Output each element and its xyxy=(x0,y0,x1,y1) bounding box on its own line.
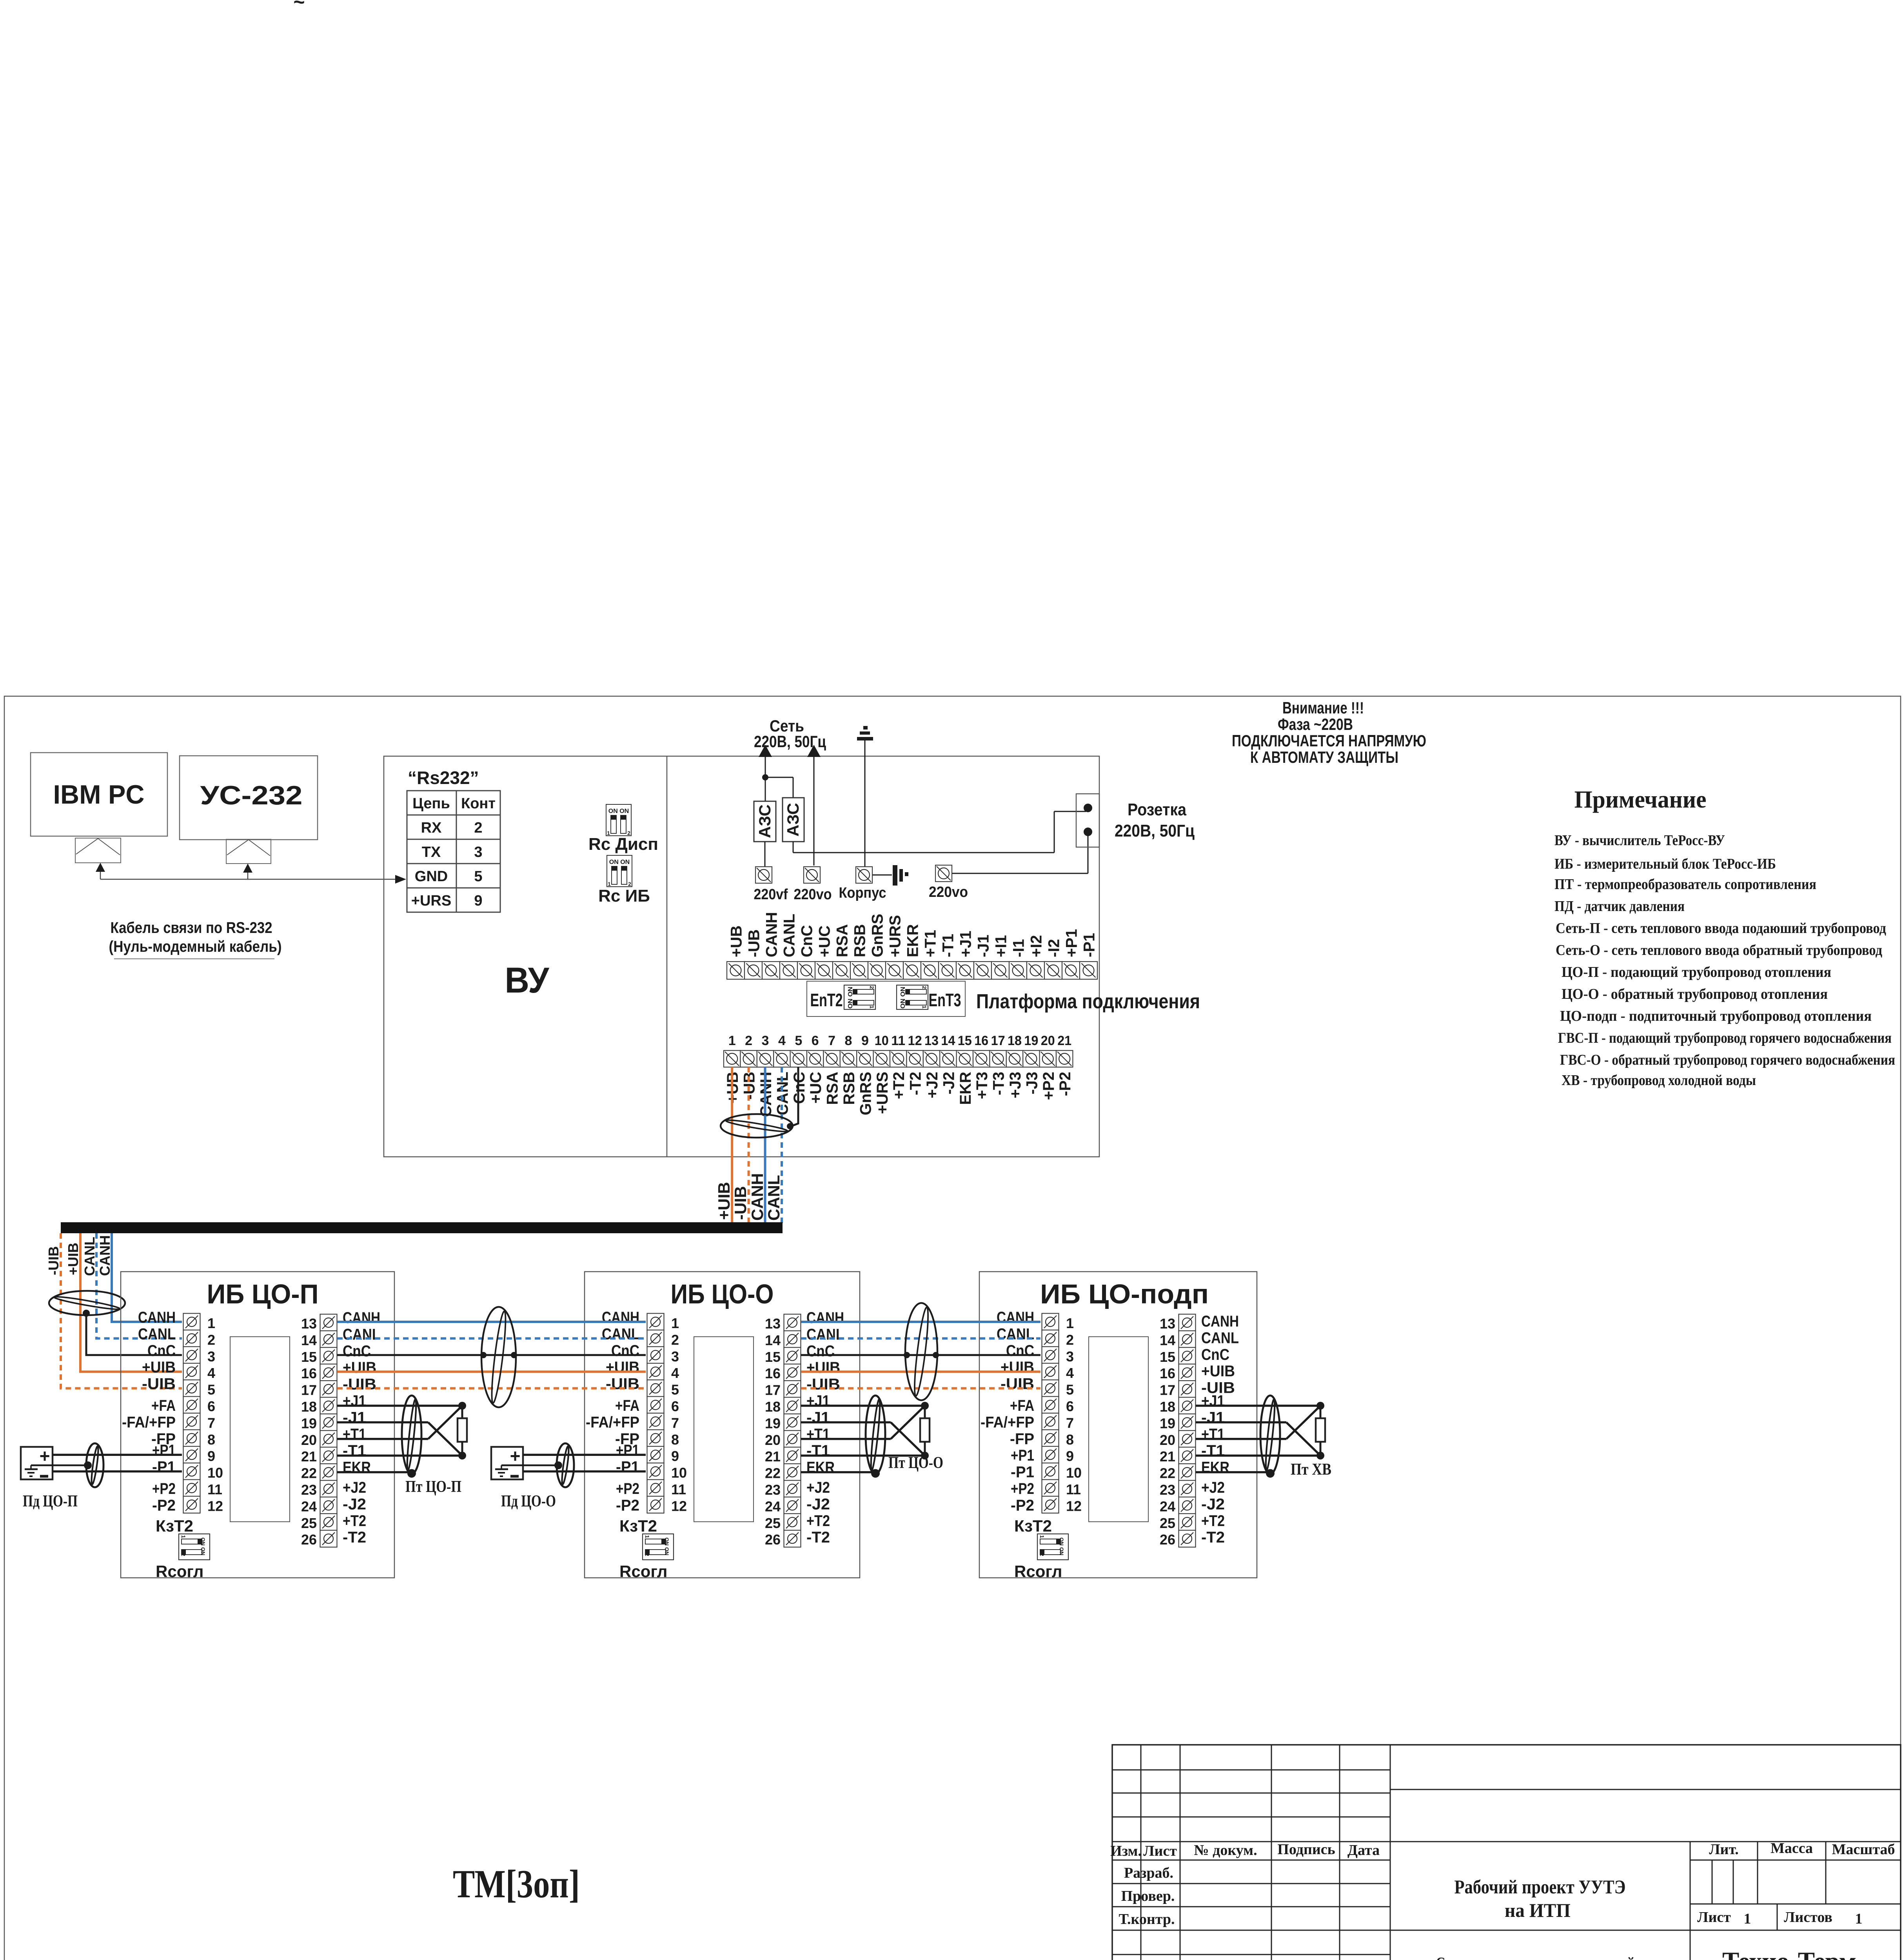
svg-text:~: ~ xyxy=(293,0,305,13)
svg-text:8: 8 xyxy=(671,1432,679,1448)
svg-text:Rc Дисп: Rc Дисп xyxy=(588,835,658,854)
svg-text:2: 2 xyxy=(1066,1332,1074,1348)
svg-text:16: 16 xyxy=(301,1365,317,1381)
svg-text:16: 16 xyxy=(974,1033,988,1048)
svg-text:18: 18 xyxy=(1008,1033,1022,1048)
svg-text:8: 8 xyxy=(845,1033,852,1048)
svg-text:3: 3 xyxy=(1066,1348,1074,1365)
svg-text:-UIB: -UIB xyxy=(606,1376,639,1393)
svg-text:-UIB: -UIB xyxy=(806,1376,840,1393)
svg-text:УС-232: УС-232 xyxy=(200,780,303,810)
svg-text:-J1: -J1 xyxy=(975,935,992,957)
svg-text:11: 11 xyxy=(207,1481,222,1497)
svg-text:CANH: CANH xyxy=(997,1309,1034,1326)
svg-text:12: 12 xyxy=(1066,1498,1082,1514)
svg-text:ON ON: ON ON xyxy=(664,1537,670,1555)
svg-text:Рабочий проект УУТЭ: Рабочий проект УУТЭ xyxy=(1454,1876,1626,1898)
svg-text:-UIB: -UIB xyxy=(731,1186,750,1220)
svg-text:15: 15 xyxy=(301,1349,317,1365)
svg-text:Пд ЦО-П: Пд ЦО-П xyxy=(23,1492,78,1510)
svg-text:9: 9 xyxy=(1066,1448,1074,1464)
svg-text:CnC: CnC xyxy=(343,1343,371,1360)
svg-text:Пт ХВ: Пт ХВ xyxy=(1291,1461,1331,1479)
svg-text:RSA: RSA xyxy=(834,924,851,957)
svg-text:5: 5 xyxy=(1066,1382,1074,1398)
svg-text:+UC: +UC xyxy=(807,1072,824,1103)
svg-text:-T1: -T1 xyxy=(940,934,957,957)
svg-text:“Rs232”: “Rs232” xyxy=(408,768,479,788)
svg-text:+J1: +J1 xyxy=(806,1392,830,1410)
svg-text:+UIB: +UIB xyxy=(343,1359,376,1376)
svg-text:+T3: +T3 xyxy=(973,1072,991,1099)
svg-text:№ докум.: № докум. xyxy=(1194,1842,1257,1858)
svg-text:+J1: +J1 xyxy=(1201,1392,1225,1410)
svg-text:-T1: -T1 xyxy=(1201,1442,1225,1459)
svg-text:Розетка: Розетка xyxy=(1128,800,1186,819)
svg-text:Техно-Терм: Техно-Терм xyxy=(1722,1946,1856,1960)
svg-text:8: 8 xyxy=(207,1432,215,1448)
svg-text:-P1: -P1 xyxy=(1081,933,1098,957)
svg-text:+P2: +P2 xyxy=(152,1480,176,1497)
svg-text:21: 21 xyxy=(1057,1033,1071,1048)
svg-text:21: 21 xyxy=(765,1448,781,1465)
svg-text:CANL: CANL xyxy=(138,1325,176,1343)
svg-text:АЗС: АЗС xyxy=(755,804,774,838)
svg-text:+P1: +P1 xyxy=(152,1442,176,1459)
svg-text:220vo: 220vo xyxy=(929,884,968,900)
svg-text:7: 7 xyxy=(207,1415,215,1431)
svg-text:6: 6 xyxy=(671,1398,679,1414)
svg-text:9: 9 xyxy=(671,1448,679,1464)
svg-text:1: 1 xyxy=(207,1315,215,1331)
svg-text:25: 25 xyxy=(765,1515,781,1531)
svg-text:4: 4 xyxy=(207,1365,215,1381)
svg-text:CANL: CANL xyxy=(806,1326,844,1343)
svg-text:11: 11 xyxy=(671,1481,686,1497)
svg-text:-T2: -T2 xyxy=(806,1529,830,1546)
svg-text:1: 1 xyxy=(644,1535,650,1538)
svg-text:Изм.: Изм. xyxy=(1110,1843,1142,1859)
svg-text:ON ON: ON ON xyxy=(608,808,629,815)
svg-text:16: 16 xyxy=(765,1365,781,1381)
svg-text:Сеть-П - сеть теплового ввода: Сеть-П - сеть теплового ввода подаюший т… xyxy=(1556,920,1886,936)
svg-text:-T1: -T1 xyxy=(343,1442,366,1459)
svg-text:Rсогл: Rсогл xyxy=(156,1562,203,1581)
svg-text:13: 13 xyxy=(1160,1316,1175,1332)
svg-text:2: 2 xyxy=(869,986,875,989)
svg-text:-P1: -P1 xyxy=(1011,1464,1034,1481)
svg-text:+P2: +P2 xyxy=(616,1480,639,1497)
svg-text:+FA: +FA xyxy=(151,1397,176,1414)
svg-text:-I1: -I1 xyxy=(1010,939,1028,957)
svg-text:4: 4 xyxy=(1066,1365,1074,1381)
svg-text:CANL: CANL xyxy=(82,1237,98,1276)
svg-text:Подпись: Подпись xyxy=(1277,1841,1335,1858)
svg-text:TX: TX xyxy=(422,844,441,860)
svg-text:+P1: +P1 xyxy=(1063,929,1080,957)
svg-text:CANL: CANL xyxy=(602,1325,639,1343)
svg-text:+FA: +FA xyxy=(1010,1397,1034,1414)
svg-text:17: 17 xyxy=(1160,1382,1175,1398)
svg-text:Сеть-О - сеть теплового ввода: Сеть-О - сеть теплового ввода обратный т… xyxy=(1556,942,1882,958)
svg-text:GnRS: GnRS xyxy=(857,1072,874,1115)
svg-text:4: 4 xyxy=(778,1033,786,1048)
svg-text:20: 20 xyxy=(1041,1033,1055,1048)
svg-text:Провер.: Провер. xyxy=(1121,1888,1175,1904)
svg-text:12: 12 xyxy=(908,1033,922,1048)
svg-text:9: 9 xyxy=(474,893,482,909)
svg-text:АЗС: АЗС xyxy=(784,803,802,837)
svg-text:-UIB: -UIB xyxy=(142,1376,176,1393)
svg-text:CANL: CANL xyxy=(343,1326,380,1343)
svg-text:ПД - датчик давления: ПД - датчик давления xyxy=(1554,898,1685,915)
svg-text:10: 10 xyxy=(875,1033,889,1048)
svg-text:17: 17 xyxy=(301,1382,317,1398)
svg-text:Пд ЦО-О: Пд ЦО-О xyxy=(501,1492,556,1510)
svg-text:26: 26 xyxy=(1160,1532,1175,1548)
svg-text:CnC: CnC xyxy=(799,925,816,957)
svg-text:+: + xyxy=(40,1446,50,1466)
svg-text:26: 26 xyxy=(301,1532,317,1548)
svg-text:Масса: Масса xyxy=(1770,1840,1813,1857)
svg-text:-J1: -J1 xyxy=(806,1409,830,1426)
svg-text:ЦО-подп - подпиточный трубопро: ЦО-подп - подпиточный трубопровод отопле… xyxy=(1560,1008,1872,1024)
svg-text:5: 5 xyxy=(474,868,482,885)
svg-text:-FA/+FP: -FA/+FP xyxy=(122,1414,176,1431)
svg-text:10: 10 xyxy=(671,1465,687,1481)
svg-text:2: 2 xyxy=(474,820,482,836)
svg-text:3: 3 xyxy=(671,1348,679,1365)
svg-text:20: 20 xyxy=(765,1432,781,1448)
svg-text:+T2: +T2 xyxy=(343,1512,366,1530)
svg-text:Цепь: Цепь xyxy=(412,795,450,812)
svg-text:CnC: CnC xyxy=(806,1343,835,1360)
svg-text:13: 13 xyxy=(765,1316,781,1332)
svg-text:19: 19 xyxy=(1160,1415,1175,1431)
svg-text:+J3: +J3 xyxy=(1007,1072,1024,1098)
svg-text:11: 11 xyxy=(891,1033,905,1048)
svg-text:18: 18 xyxy=(765,1399,781,1415)
svg-text:-I2: -I2 xyxy=(1046,939,1063,957)
svg-text:1: 1 xyxy=(1744,1911,1751,1927)
svg-text:RSA: RSA xyxy=(824,1072,841,1105)
svg-text:-T2: -T2 xyxy=(343,1529,366,1546)
svg-text:19: 19 xyxy=(1024,1033,1038,1048)
svg-text:14: 14 xyxy=(1160,1332,1175,1348)
svg-text:2: 2 xyxy=(207,1332,215,1348)
svg-text:9: 9 xyxy=(861,1033,869,1048)
svg-text:+UIB: +UIB xyxy=(806,1359,840,1376)
svg-text:+UIB: +UIB xyxy=(142,1359,176,1376)
svg-text:4: 4 xyxy=(671,1365,679,1381)
svg-text:EKR: EKR xyxy=(343,1459,371,1476)
svg-text:+J2: +J2 xyxy=(924,1072,941,1098)
svg-text:КзТ2: КзТ2 xyxy=(619,1517,657,1535)
svg-text:-UIB: -UIB xyxy=(343,1376,376,1393)
svg-text:+T2: +T2 xyxy=(1201,1512,1225,1530)
svg-text:Лист: Лист xyxy=(1697,1909,1731,1926)
svg-text:+I2: +I2 xyxy=(1028,935,1045,957)
svg-text:-FA/+FP: -FA/+FP xyxy=(981,1414,1034,1431)
svg-text:+J2: +J2 xyxy=(343,1479,366,1496)
svg-text:-P2: -P2 xyxy=(616,1497,639,1514)
svg-text:+UIB: +UIB xyxy=(1001,1359,1034,1376)
svg-text:6: 6 xyxy=(812,1033,819,1048)
svg-text:+P1: +P1 xyxy=(1011,1447,1034,1464)
svg-text:-P2: -P2 xyxy=(1011,1497,1034,1514)
svg-text:10: 10 xyxy=(207,1465,223,1481)
svg-text:1: 1 xyxy=(1855,1911,1863,1927)
svg-text:+UIB: +UIB xyxy=(65,1243,81,1275)
svg-text:22: 22 xyxy=(301,1465,317,1481)
svg-text:RX: RX xyxy=(421,820,442,836)
svg-text:Дата: Дата xyxy=(1347,1842,1380,1858)
svg-text:ON ON: ON ON xyxy=(200,1537,206,1555)
svg-text:19: 19 xyxy=(765,1415,781,1431)
svg-text:Разраб.: Разраб. xyxy=(1124,1865,1173,1881)
svg-text:+J2: +J2 xyxy=(806,1479,830,1496)
svg-text:-P2: -P2 xyxy=(1057,1072,1074,1096)
svg-text:+UIB: +UIB xyxy=(715,1182,733,1220)
svg-text:6: 6 xyxy=(207,1398,215,1414)
svg-text:Примечание: Примечание xyxy=(1574,786,1707,813)
svg-text:5: 5 xyxy=(795,1033,802,1048)
svg-text:-UIB: -UIB xyxy=(1001,1376,1034,1393)
svg-text:Лит.: Лит. xyxy=(1709,1841,1739,1858)
svg-text:ИБ - измерительный блок ТеРосс: ИБ - измерительный блок ТеРосс-ИБ xyxy=(1554,856,1776,872)
svg-text:+J1: +J1 xyxy=(957,931,975,957)
svg-text:CnC: CnC xyxy=(1201,1346,1229,1363)
svg-text:Пт ЦО-П: Пт ЦО-П xyxy=(405,1478,461,1496)
svg-text:ГВС-П - подающий трубопровод г: ГВС-П - подающий трубопровод горячего во… xyxy=(1558,1030,1892,1046)
svg-text:CANH: CANH xyxy=(97,1235,113,1276)
svg-text:23: 23 xyxy=(301,1482,317,1498)
svg-text:+UC: +UC xyxy=(816,926,833,957)
svg-text:ГВС-О - обратный трубопровод г: ГВС-О - обратный трубопровод горячего во… xyxy=(1560,1052,1895,1068)
svg-text:-P1: -P1 xyxy=(616,1459,639,1476)
svg-text:+URS: +URS xyxy=(887,915,904,957)
svg-text:18: 18 xyxy=(301,1399,317,1415)
svg-text:+UIB: +UIB xyxy=(1201,1363,1235,1380)
svg-text:GnRS: GnRS xyxy=(869,914,886,957)
svg-text:CANH: CANH xyxy=(1201,1313,1239,1330)
svg-text:+T1: +T1 xyxy=(1201,1426,1225,1443)
svg-text:CANL: CANL xyxy=(997,1325,1034,1343)
svg-text:ИБ ЦО-подп: ИБ ЦО-подп xyxy=(1040,1279,1209,1309)
svg-text:24: 24 xyxy=(765,1498,781,1514)
svg-text:ПОДКЛЮЧАЕТСЯ НАПРЯМУЮ: ПОДКЛЮЧАЕТСЯ НАПРЯМУЮ xyxy=(1232,731,1426,750)
svg-text:+T1: +T1 xyxy=(922,930,939,957)
svg-text:11: 11 xyxy=(1066,1481,1081,1497)
svg-text:1: 1 xyxy=(180,1535,187,1538)
svg-text:+: + xyxy=(510,1446,521,1466)
svg-text:Внимание !!!: Внимание !!! xyxy=(1282,699,1364,717)
svg-text:К АВТОМАТУ ЗАЩИТЫ: К АВТОМАТУ ЗАЩИТЫ xyxy=(1250,748,1398,766)
svg-text:13: 13 xyxy=(301,1316,317,1332)
svg-text:8: 8 xyxy=(1066,1432,1074,1448)
svg-text:Фаза ~220В: Фаза ~220В xyxy=(1278,715,1353,733)
svg-text:+FA: +FA xyxy=(615,1397,639,1414)
svg-text:КзТ2: КзТ2 xyxy=(156,1517,193,1535)
svg-text:+URS: +URS xyxy=(411,893,451,909)
svg-text:7: 7 xyxy=(1066,1415,1074,1431)
svg-text:EKR: EKR xyxy=(904,924,922,957)
svg-text:Т.контр.: Т.контр. xyxy=(1119,1911,1175,1927)
svg-text:(Нуль-модемный кабель): (Нуль-модемный кабель) xyxy=(109,938,282,955)
svg-text:+J2: +J2 xyxy=(1201,1479,1225,1496)
svg-text:+UIB: +UIB xyxy=(606,1359,639,1376)
svg-text:3: 3 xyxy=(474,844,482,860)
svg-text:ВУ - вычислитель ТеРосс-ВУ: ВУ - вычислитель ТеРосс-ВУ xyxy=(1554,832,1725,849)
svg-text:-T3: -T3 xyxy=(990,1072,1008,1095)
svg-text:Листов: Листов xyxy=(1784,1909,1832,1926)
svg-text:EKR: EKR xyxy=(1201,1459,1229,1476)
svg-text:+P2: +P2 xyxy=(1011,1480,1034,1497)
svg-text:2: 2 xyxy=(745,1033,752,1048)
svg-text:3: 3 xyxy=(762,1033,769,1048)
svg-text:ПТ - термопреобразователь сопр: ПТ - термопреобразователь сопротивления xyxy=(1554,876,1816,893)
svg-text:22: 22 xyxy=(765,1465,781,1481)
svg-text:EnT3: EnT3 xyxy=(929,990,961,1010)
svg-text:14: 14 xyxy=(301,1332,317,1348)
svg-text:12: 12 xyxy=(671,1498,687,1514)
svg-text:RSB: RSB xyxy=(841,1072,858,1105)
svg-text:EnT2: EnT2 xyxy=(810,990,843,1010)
svg-text:7: 7 xyxy=(671,1415,679,1431)
svg-text:-P1: -P1 xyxy=(152,1459,176,1476)
svg-text:-J2: -J2 xyxy=(343,1495,366,1513)
svg-text:-J1: -J1 xyxy=(343,1409,366,1426)
svg-text:EKR: EKR xyxy=(806,1459,835,1476)
svg-text:EKR: EKR xyxy=(957,1072,974,1105)
svg-text:GND: GND xyxy=(415,868,448,885)
svg-text:RSB: RSB xyxy=(852,924,869,957)
svg-text:CnC: CnC xyxy=(611,1342,639,1359)
svg-text:-P2: -P2 xyxy=(152,1497,176,1514)
svg-text:1: 1 xyxy=(869,1005,875,1009)
svg-text:-FP: -FP xyxy=(1010,1430,1034,1448)
svg-text:9: 9 xyxy=(207,1448,215,1464)
svg-text:25: 25 xyxy=(1160,1515,1175,1531)
svg-text:CnC: CnC xyxy=(1006,1342,1034,1359)
svg-text:Rсогл: Rсогл xyxy=(619,1562,667,1581)
svg-text:-J3: -J3 xyxy=(1023,1072,1040,1094)
svg-text:10: 10 xyxy=(1066,1465,1082,1481)
svg-text:220vf: 220vf xyxy=(754,886,788,903)
svg-text:Лист: Лист xyxy=(1143,1843,1177,1859)
svg-text:-FA/+FP: -FA/+FP xyxy=(586,1414,639,1431)
svg-text:CnC: CnC xyxy=(147,1342,176,1359)
svg-text:CANH: CANH xyxy=(806,1309,844,1327)
svg-text:Пт ЦО-О: Пт ЦО-О xyxy=(888,1454,943,1472)
svg-text:CnC: CnC xyxy=(791,1072,808,1104)
svg-text:-J2: -J2 xyxy=(1201,1495,1225,1513)
svg-text:Конт: Конт xyxy=(461,795,496,812)
svg-text:IBM PC: IBM PC xyxy=(53,780,145,809)
svg-text:20: 20 xyxy=(301,1432,317,1448)
svg-text:220В, 50Гц: 220В, 50Гц xyxy=(1115,821,1195,840)
svg-text:ИБ ЦО-П: ИБ ЦО-П xyxy=(207,1279,319,1309)
svg-text:220vo: 220vo xyxy=(794,886,832,903)
svg-text:ON ON: ON ON xyxy=(1059,1537,1065,1555)
svg-text:23: 23 xyxy=(765,1482,781,1498)
svg-text:+J1: +J1 xyxy=(343,1392,366,1410)
svg-text:22: 22 xyxy=(1160,1465,1175,1481)
svg-text:6: 6 xyxy=(1066,1398,1074,1414)
svg-text:-J2: -J2 xyxy=(940,1072,957,1094)
svg-text:21: 21 xyxy=(301,1448,317,1465)
svg-text:ON ON: ON ON xyxy=(609,859,630,866)
svg-text:1: 1 xyxy=(1039,1535,1045,1538)
svg-text:+I1: +I1 xyxy=(993,935,1010,957)
svg-text:18: 18 xyxy=(1160,1399,1175,1415)
svg-text:26: 26 xyxy=(765,1532,781,1548)
svg-text:+P2: +P2 xyxy=(1040,1072,1057,1100)
svg-text:15: 15 xyxy=(1160,1349,1175,1365)
svg-text:CANH: CANH xyxy=(748,1173,766,1221)
svg-text:1: 1 xyxy=(728,1033,736,1048)
svg-text:19: 19 xyxy=(301,1415,317,1431)
svg-text:12: 12 xyxy=(207,1498,223,1514)
svg-text:-T1: -T1 xyxy=(806,1442,830,1459)
svg-text:17: 17 xyxy=(991,1033,1005,1048)
svg-text:16: 16 xyxy=(1160,1365,1175,1381)
svg-text:7: 7 xyxy=(828,1033,835,1048)
svg-text:CANH: CANH xyxy=(343,1309,380,1327)
svg-text:+T1: +T1 xyxy=(806,1426,830,1443)
svg-text:5: 5 xyxy=(671,1382,679,1398)
svg-text:17: 17 xyxy=(765,1382,781,1398)
svg-text:+T2: +T2 xyxy=(890,1072,908,1099)
svg-text:21: 21 xyxy=(1160,1448,1175,1465)
svg-text:3: 3 xyxy=(207,1348,215,1365)
svg-text:15: 15 xyxy=(958,1033,972,1048)
svg-text:ИБ ЦО-О: ИБ ЦО-О xyxy=(671,1279,774,1309)
svg-text:Платформа подключения: Платформа подключения xyxy=(976,990,1200,1013)
svg-text:Масштаб: Масштаб xyxy=(1832,1841,1895,1858)
svg-text:CANH: CANH xyxy=(602,1309,639,1326)
svg-text:13: 13 xyxy=(924,1033,939,1048)
svg-text:Сзема электрических соединений: Сзема электрических соединений xyxy=(1436,1955,1635,1960)
svg-text:CANL: CANL xyxy=(781,914,798,957)
svg-text:Rc ИБ: Rc ИБ xyxy=(598,886,650,906)
svg-text:1: 1 xyxy=(671,1315,679,1331)
svg-text:Корпус: Корпус xyxy=(839,885,886,901)
svg-text:-UIB: -UIB xyxy=(45,1246,62,1275)
svg-text:2: 2 xyxy=(671,1332,679,1348)
svg-text:+T1: +T1 xyxy=(343,1426,366,1443)
svg-text:CANL: CANL xyxy=(764,1175,783,1221)
svg-text:14: 14 xyxy=(765,1332,781,1348)
svg-text:ЦО-П - подающий трубопровод от: ЦО-П - подающий трубопровод отопления xyxy=(1562,964,1831,980)
svg-text:15: 15 xyxy=(765,1349,781,1365)
svg-text:+T2: +T2 xyxy=(806,1512,830,1530)
svg-text:5: 5 xyxy=(207,1382,215,1398)
svg-text:1: 1 xyxy=(1066,1315,1074,1331)
svg-text:14: 14 xyxy=(941,1033,955,1048)
svg-text:Кабель связи по RS-232: Кабель связи по RS-232 xyxy=(111,919,272,936)
svg-text:24: 24 xyxy=(301,1498,317,1514)
svg-text:23: 23 xyxy=(1160,1482,1175,1498)
svg-text:-UB: -UB xyxy=(746,929,763,957)
svg-text:24: 24 xyxy=(1160,1498,1175,1514)
svg-text:+URS: +URS xyxy=(874,1072,891,1114)
svg-text:20: 20 xyxy=(1160,1432,1175,1448)
svg-text:на ИТП: на ИТП xyxy=(1505,1899,1571,1921)
svg-text:-T2: -T2 xyxy=(1201,1529,1225,1546)
svg-text:1: 1 xyxy=(921,1005,928,1009)
svg-text:ХВ - трубопровод холодной воды: ХВ - трубопровод холодной воды xyxy=(1562,1072,1756,1089)
